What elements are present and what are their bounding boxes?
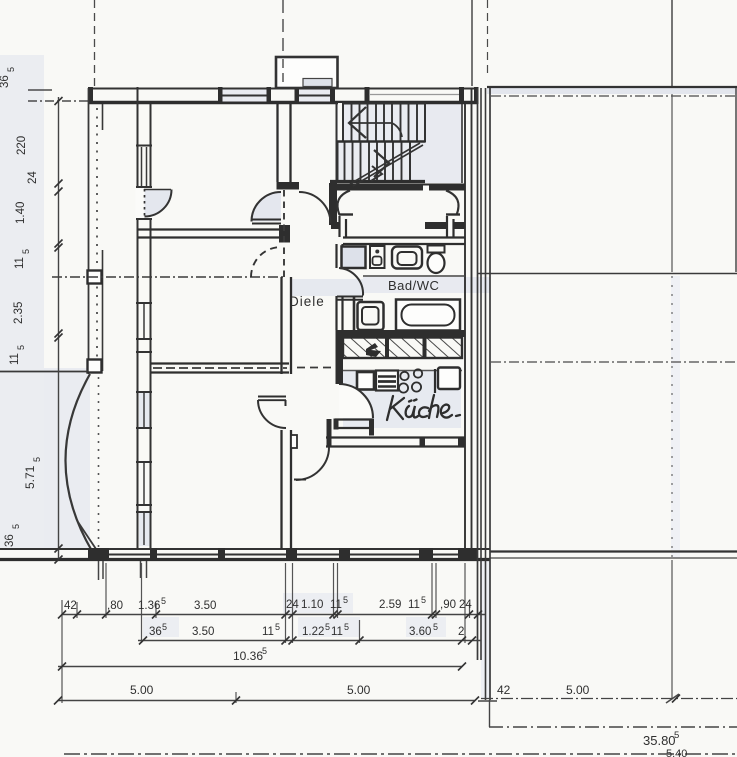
- svg-text:1.10: 1.10: [301, 599, 323, 611]
- svg-text:5: 5: [21, 249, 31, 254]
- svg-text:5: 5: [161, 596, 166, 606]
- svg-text:24: 24: [27, 171, 39, 184]
- svg-text:5: 5: [325, 622, 330, 632]
- svg-text:2.35: 2.35: [13, 302, 25, 324]
- svg-text:35.80: 35.80: [643, 733, 676, 748]
- svg-text:5: 5: [16, 345, 26, 350]
- svg-text:11: 11: [408, 599, 420, 611]
- svg-text:5: 5: [433, 622, 438, 632]
- svg-text:42: 42: [64, 600, 77, 612]
- svg-text:5: 5: [343, 595, 348, 605]
- svg-text:5: 5: [162, 622, 167, 632]
- svg-text:36: 36: [0, 75, 11, 88]
- svg-text:5: 5: [262, 646, 267, 656]
- svg-text:11: 11: [9, 353, 21, 365]
- svg-text:11: 11: [14, 257, 26, 269]
- svg-text:5.40: 5.40: [666, 748, 687, 757]
- svg-text:3.50: 3.50: [192, 626, 214, 638]
- svg-text:5.00: 5.00: [347, 683, 371, 697]
- svg-text:10.36: 10.36: [233, 649, 263, 663]
- svg-text:11: 11: [330, 599, 342, 611]
- svg-text:24: 24: [286, 599, 299, 611]
- svg-text:,90: ,90: [440, 599, 456, 611]
- svg-text:42: 42: [497, 683, 511, 697]
- svg-text:5: 5: [421, 595, 426, 605]
- svg-text:36: 36: [4, 534, 16, 547]
- svg-text:Bad/WC: Bad/WC: [388, 278, 439, 293]
- svg-text:11: 11: [331, 626, 343, 638]
- svg-text:5: 5: [11, 524, 21, 529]
- svg-text:2.59: 2.59: [379, 599, 401, 611]
- svg-text:5: 5: [344, 622, 349, 632]
- svg-text:3.60: 3.60: [409, 626, 431, 638]
- svg-text:11: 11: [262, 626, 274, 638]
- svg-text:Diele: Diele: [289, 294, 325, 309]
- svg-text:24: 24: [459, 599, 472, 611]
- svg-text:3.50: 3.50: [194, 600, 216, 612]
- svg-text:1.36: 1.36: [138, 600, 160, 612]
- svg-text:5.00: 5.00: [566, 683, 590, 697]
- svg-text:5: 5: [6, 67, 16, 72]
- svg-text:1.22: 1.22: [302, 626, 324, 638]
- svg-text:220: 220: [16, 136, 28, 155]
- svg-text:5.71: 5.71: [23, 465, 37, 489]
- svg-text:5: 5: [674, 730, 679, 741]
- svg-text:36: 36: [149, 626, 162, 638]
- svg-text:1.40: 1.40: [15, 202, 27, 224]
- svg-text:2: 2: [458, 626, 464, 638]
- svg-text:,80: ,80: [107, 600, 123, 612]
- svg-text:5: 5: [32, 457, 42, 462]
- svg-text:5.00: 5.00: [130, 683, 154, 697]
- svg-text:5: 5: [275, 622, 280, 632]
